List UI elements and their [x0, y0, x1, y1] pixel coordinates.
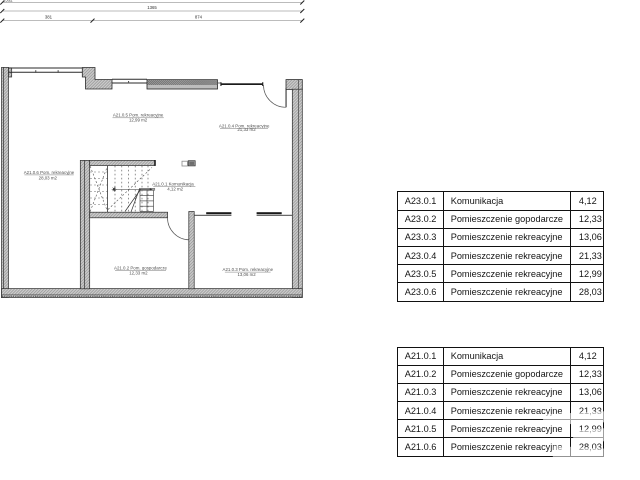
- svg-text:12,33 m2: 12,33 m2: [129, 270, 148, 275]
- svg-text:12,99 m2: 12,99 m2: [129, 117, 148, 122]
- svg-text:1332: 1332: [3, 0, 13, 3]
- svg-text:A21.0.6 Pom. rekreacyjne: A21.0.6 Pom. rekreacyjne: [24, 170, 75, 175]
- svg-text:381: 381: [45, 15, 53, 20]
- svg-text:4,12 m2: 4,12 m2: [167, 187, 183, 192]
- svg-text:13,06 m2: 13,06 m2: [237, 272, 256, 277]
- svg-text:874: 874: [195, 15, 203, 20]
- svg-text:28,03 m2: 28,03 m2: [39, 176, 58, 181]
- svg-text:21,33 m2: 21,33 m2: [237, 127, 256, 132]
- svg-text:1365: 1365: [147, 5, 157, 10]
